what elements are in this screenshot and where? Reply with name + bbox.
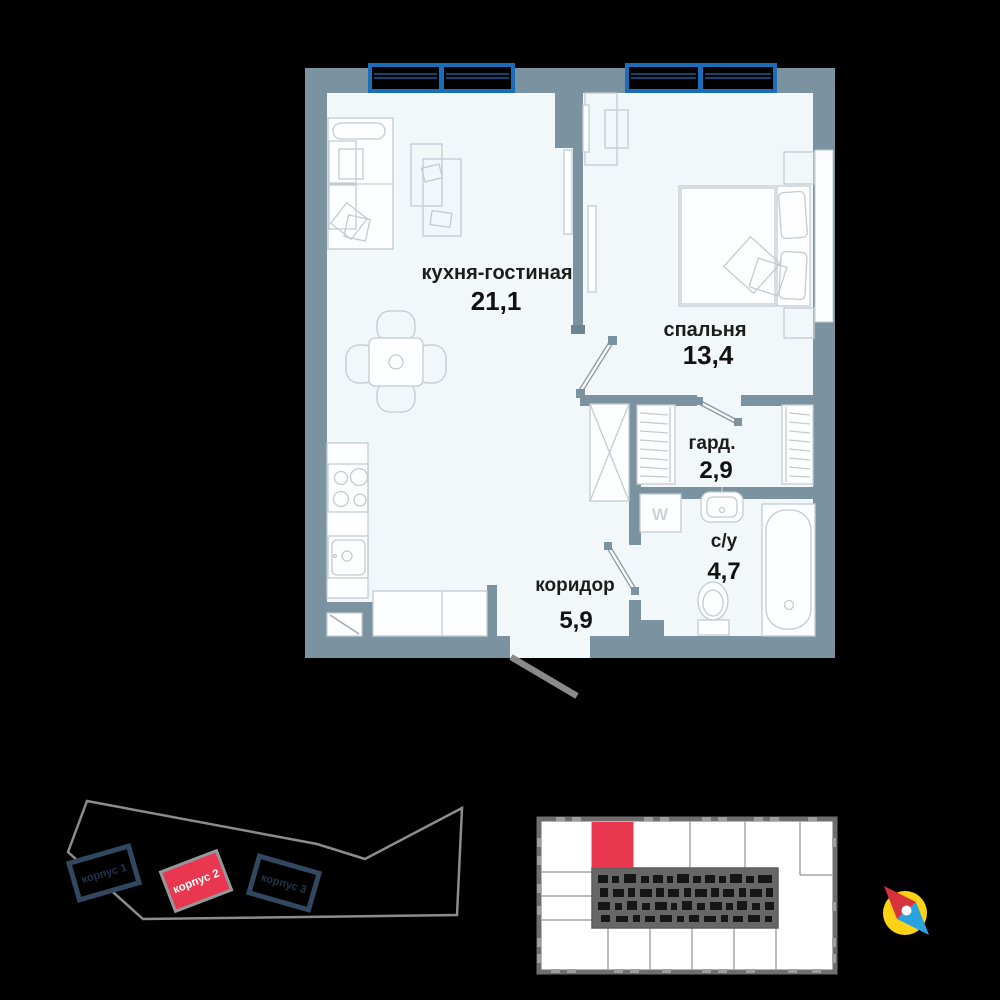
window-bedroom — [627, 65, 775, 91]
floor-plate-minimap — [537, 817, 836, 973]
wall-kitchen-bedroom — [573, 148, 583, 333]
room-area-wardrobe: 2,9 — [699, 457, 732, 484]
wall-niche — [815, 150, 833, 322]
room-label-corridor: коридор — [535, 575, 614, 596]
lower-counter — [373, 591, 487, 636]
room-label-wardrobe: гард. — [689, 433, 736, 454]
room-label-kitchen-living: кухня-гостиная — [421, 262, 572, 284]
room-area-bedroom: 13,4 — [683, 340, 734, 370]
bathtub — [762, 504, 815, 636]
bathroom-sink — [701, 487, 743, 522]
compass-pivot — [902, 906, 912, 916]
ventilation-shaft — [327, 613, 362, 636]
room-label-bedroom: спальня — [663, 319, 746, 341]
building-korpus-1[interactable]: корпус 1 — [69, 846, 139, 900]
compass — [883, 886, 929, 935]
building-korpus-2-selected[interactable]: корпус 2 — [160, 851, 231, 912]
column — [555, 93, 583, 148]
building-korpus-3[interactable]: корпус 3 — [249, 856, 319, 910]
selected-unit-highlight[interactable] — [592, 822, 633, 868]
sofa — [328, 118, 393, 249]
plan-canvas: W — [0, 0, 1000, 1000]
room-area-bathroom: 4,7 — [707, 558, 740, 585]
bed — [679, 186, 810, 306]
washing-machine: W — [640, 494, 681, 532]
toilet — [698, 582, 729, 635]
building-core — [592, 868, 778, 928]
apartment-floor-plan: W — [305, 65, 835, 696]
entry-doorway-floor — [510, 636, 590, 658]
room-label-bathroom: с/у — [711, 531, 738, 552]
washer-label: W — [652, 505, 669, 524]
room-area-corridor: 5,9 — [559, 607, 592, 634]
window-kitchen — [370, 65, 513, 91]
entry-door — [511, 657, 577, 696]
room-area-kitchen-living: 21,1 — [471, 286, 522, 316]
hall-closet — [590, 404, 629, 501]
floorplan-page: W — [0, 0, 1000, 1000]
site-plan: корпус 1 корпус 2 корпус 3 — [68, 801, 462, 919]
